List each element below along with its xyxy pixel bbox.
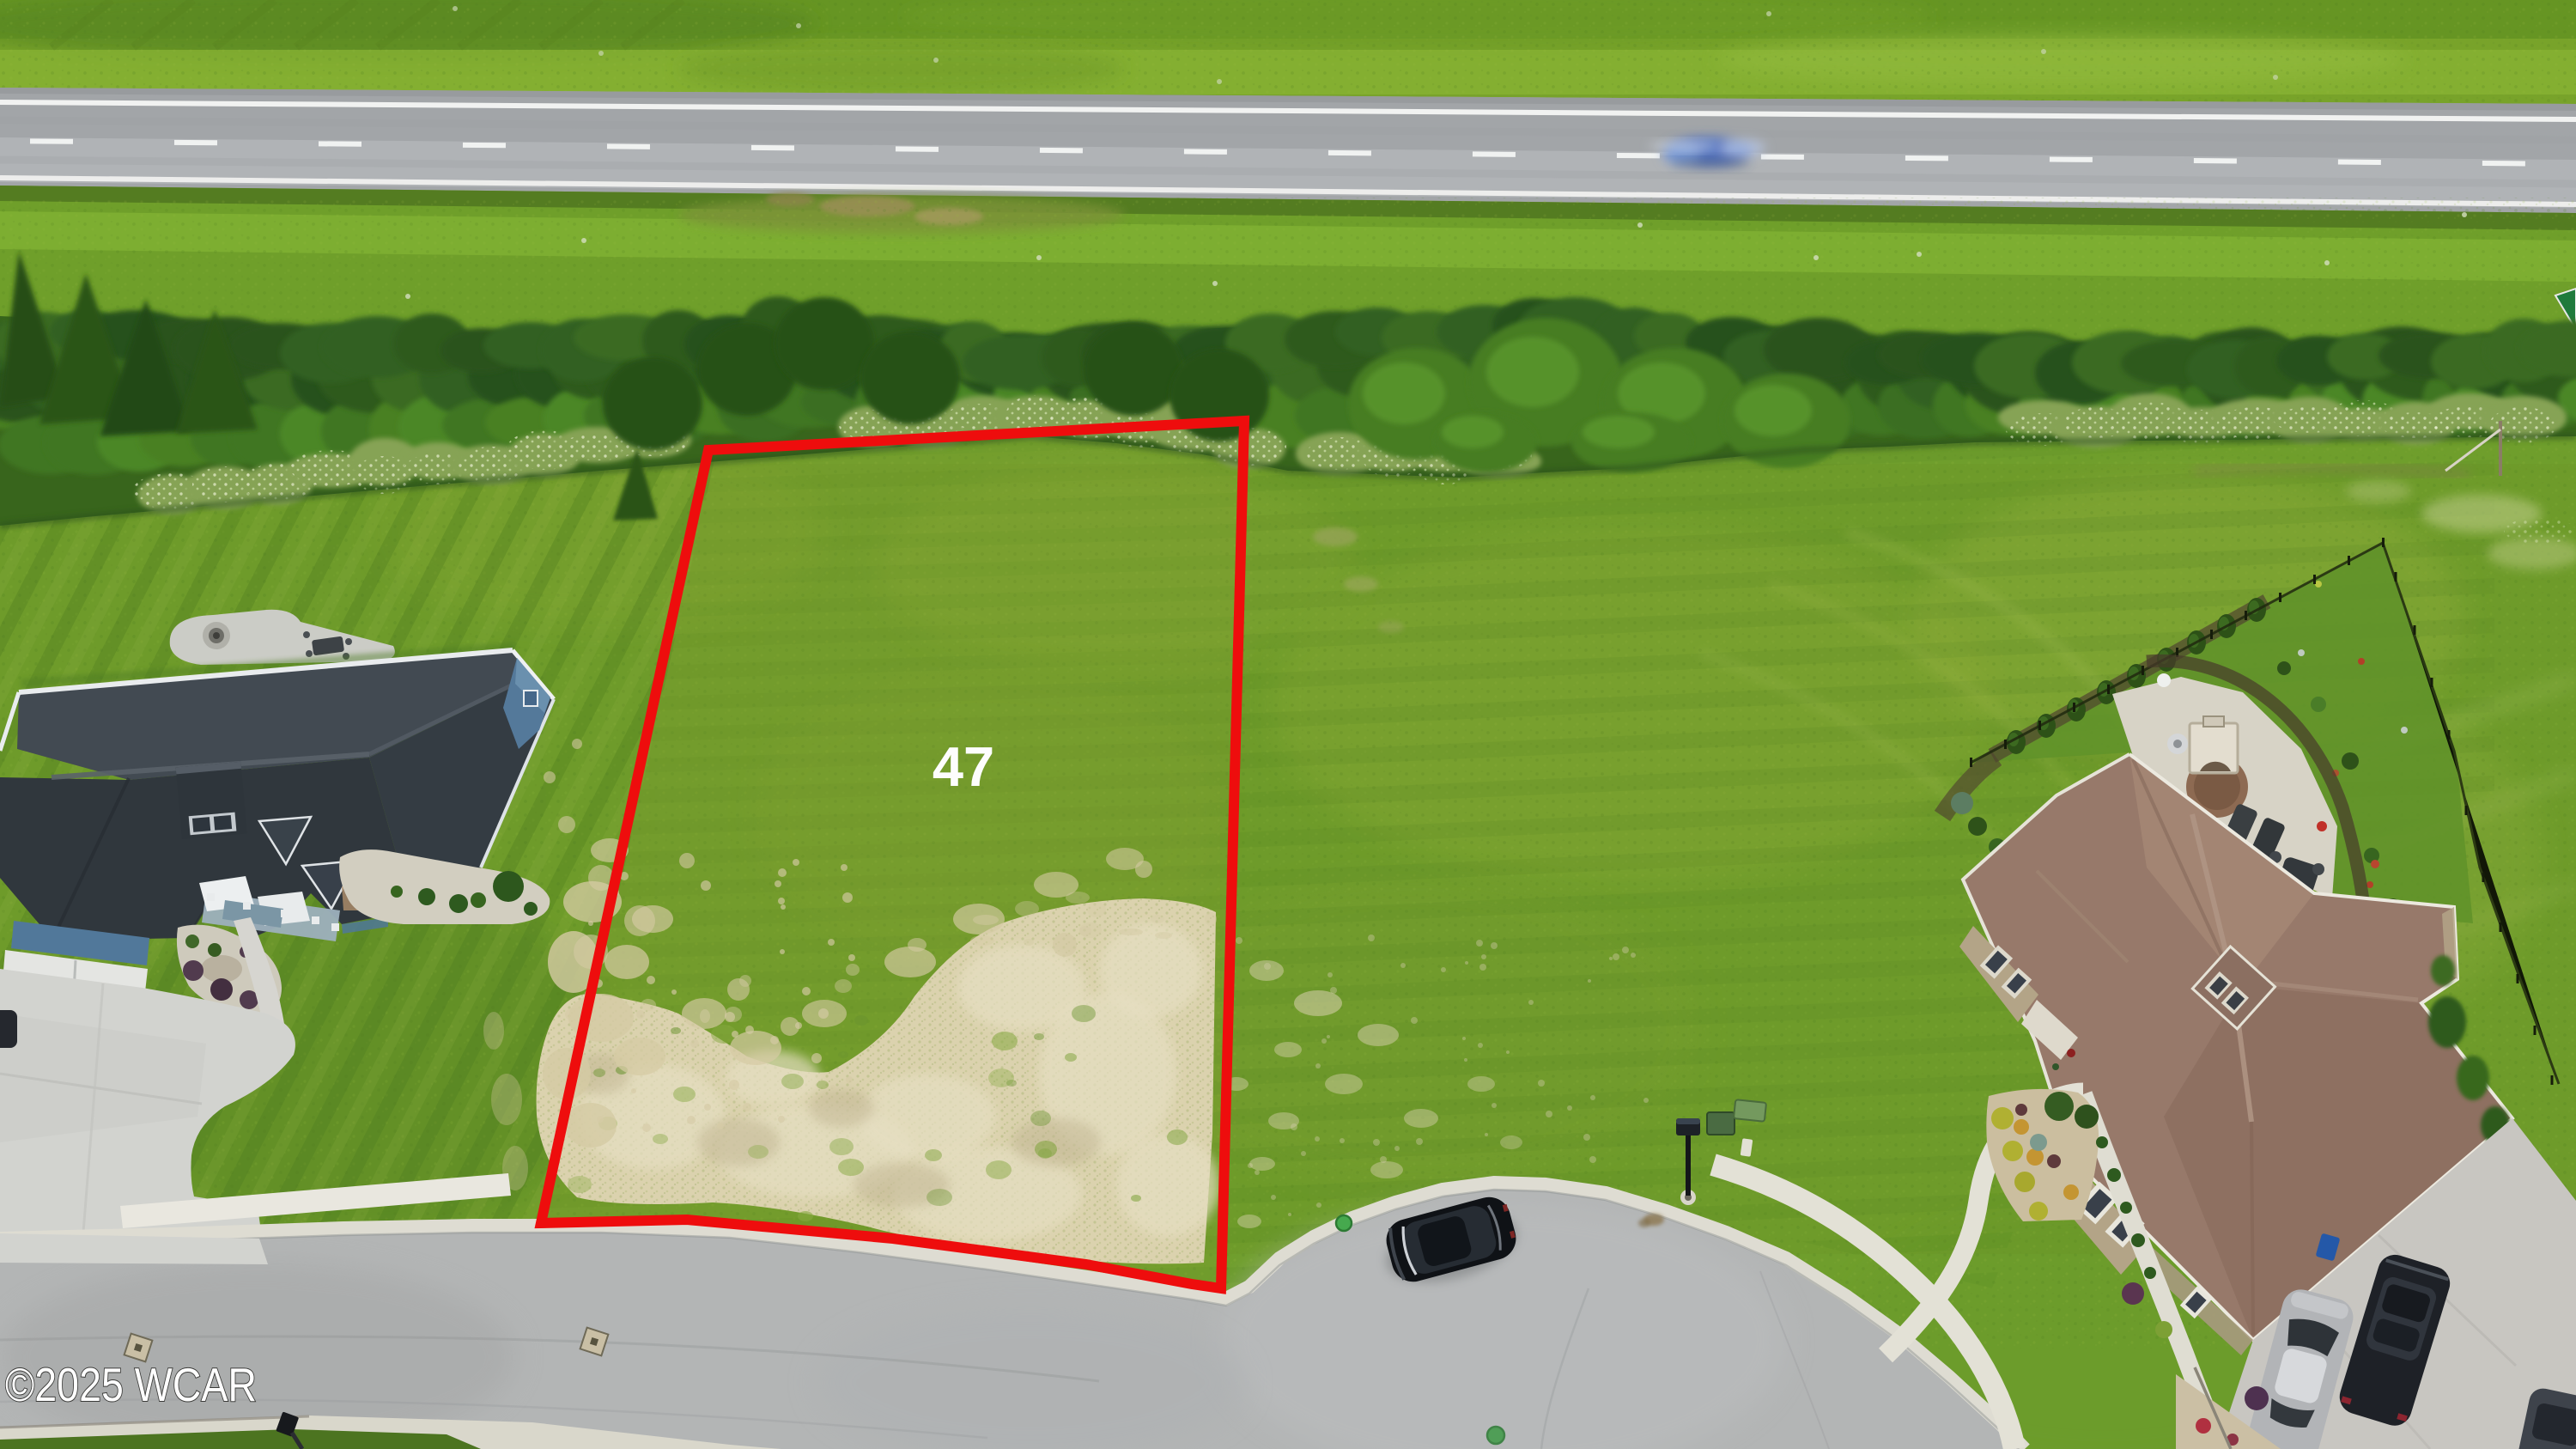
svg-text:47: 47 <box>933 735 994 798</box>
svg-text:©2025 WCAR: ©2025 WCAR <box>5 1358 257 1411</box>
